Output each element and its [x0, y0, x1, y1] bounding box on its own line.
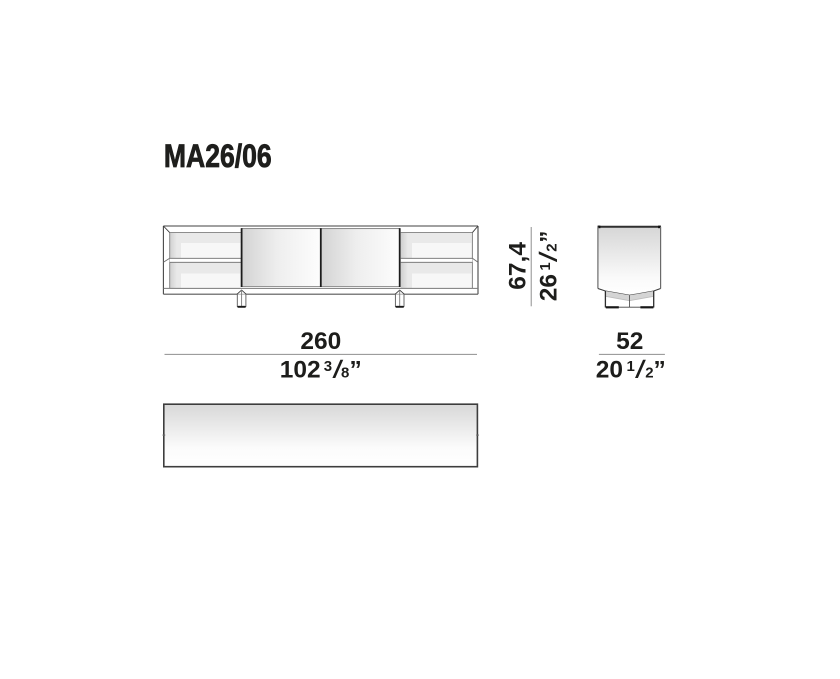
svg-text:102: 102 — [280, 357, 321, 384]
svg-text:1: 1 — [537, 262, 554, 270]
svg-text:67,4: 67,4 — [505, 242, 532, 290]
svg-text:”: ” — [536, 231, 563, 243]
svg-text:MA26/06: MA26/06 — [164, 139, 272, 175]
svg-text:”: ” — [654, 357, 666, 384]
svg-text:3: 3 — [324, 358, 332, 375]
svg-text:2: 2 — [645, 365, 653, 382]
svg-text:”: ” — [350, 357, 362, 384]
svg-text:2: 2 — [544, 243, 561, 251]
svg-text:52: 52 — [616, 328, 643, 355]
svg-text:20: 20 — [596, 357, 623, 384]
svg-text:8: 8 — [341, 365, 349, 382]
svg-text:26: 26 — [536, 274, 563, 301]
svg-text:260: 260 — [300, 328, 341, 355]
svg-text:1: 1 — [627, 358, 635, 375]
